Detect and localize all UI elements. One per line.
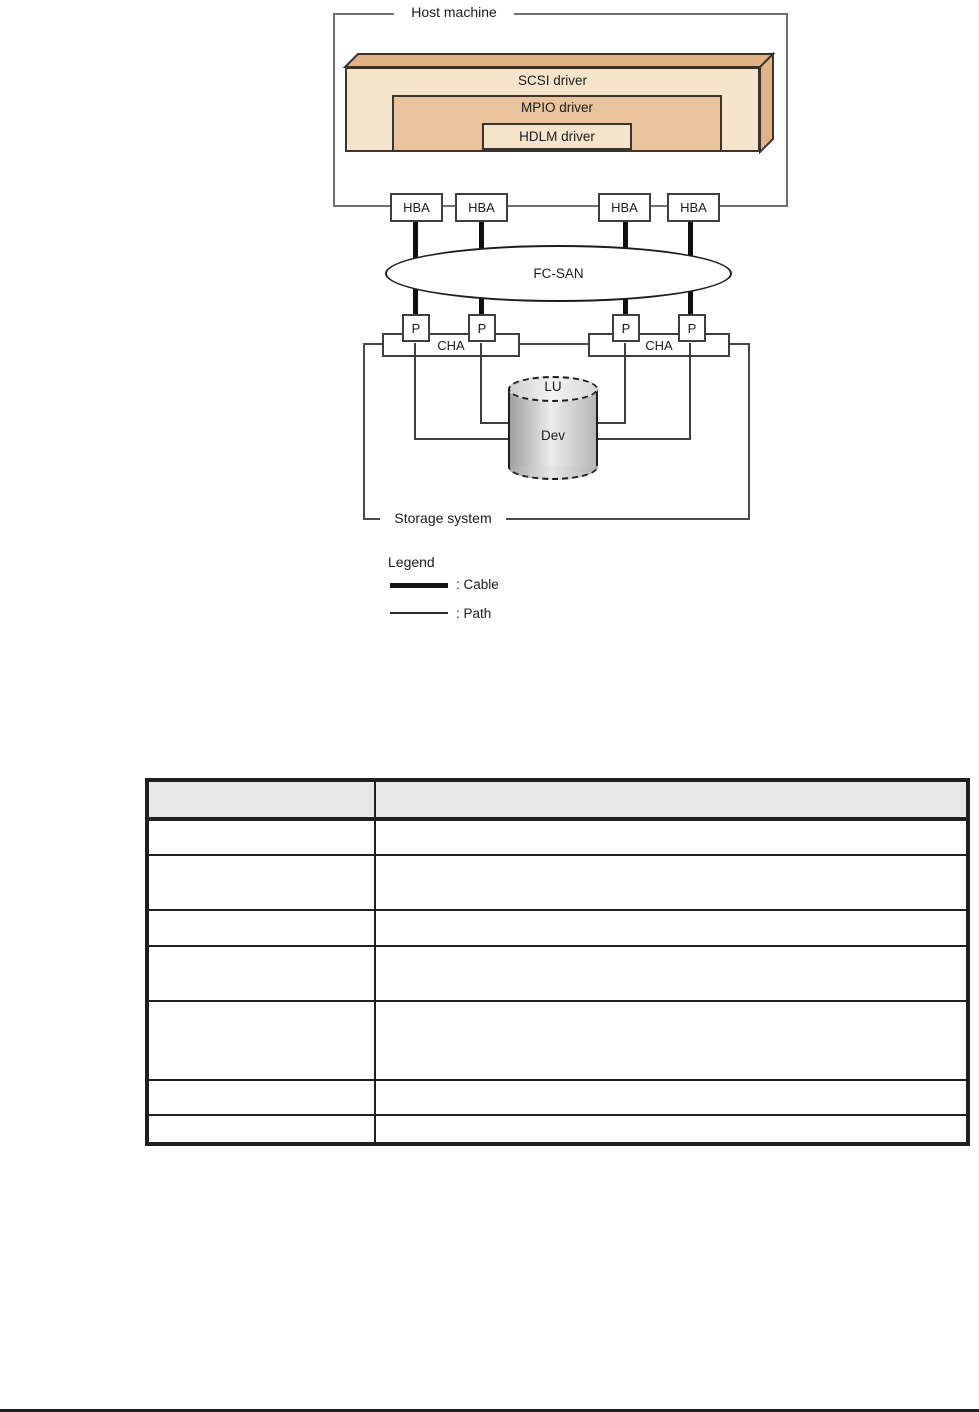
cha-box-2: CHA [588,333,730,357]
table-row [149,854,966,909]
table-row [149,945,966,1000]
table-cell [149,1002,376,1079]
document-page: Host machine SCSI driver MPIO driver HDL… [0,0,979,1412]
table-cell [376,911,966,945]
hba-box-2: HBA [455,193,508,222]
legend-title: Legend [388,554,435,571]
table-cell [376,1081,966,1114]
table-cell [376,947,966,1000]
port-box-3: P [612,314,640,342]
table-cell [149,947,376,1000]
table-cell [376,1116,966,1142]
lu-label: LU [508,379,598,395]
scsi-driver-label: SCSI driver [345,73,760,89]
table-row [149,1079,966,1114]
path-line-vertical-1 [414,343,416,440]
table-row [149,821,966,854]
port-box-4: P [678,314,706,342]
port-box-2: P [468,314,496,342]
path-line-vertical-3 [624,343,626,424]
dev-label: Dev [508,428,598,444]
table-row [149,1114,966,1142]
table-cell [376,856,966,909]
table-header-cell-2 [376,782,966,817]
path-line-horizontal-2 [480,422,508,424]
host-machine-label: Host machine [394,4,514,23]
table-cell [376,1002,966,1079]
table-cell [149,1116,376,1142]
path-line-vertical-2 [480,343,482,424]
table-cell [149,821,376,854]
storage-system-label: Storage system [380,510,506,529]
path-line-horizontal-3 [598,422,626,424]
fc-san-ellipse: FC-SAN [385,245,732,302]
path-line-horizontal-4 [598,438,691,440]
table-cell [376,821,966,854]
legend-cable-label: : Cable [456,577,499,593]
table-row [149,1000,966,1079]
table [145,778,970,1146]
hdlm-driver-box: HDLM driver [482,123,632,150]
hba-box-3: HBA [598,193,651,222]
table-cell [149,856,376,909]
table-row [149,909,966,945]
table-header-row [149,782,966,821]
table-cell [149,911,376,945]
mpio-driver-label: MPIO driver [392,100,722,116]
path-line-horizontal-1 [414,438,508,440]
legend-cable-line-sample [390,583,448,588]
legend-path-line-sample [390,612,448,614]
lu-cylinder-bottom-cap [506,466,600,482]
hba-box-4: HBA [667,193,720,222]
hba-box-1: HBA [390,193,443,222]
legend-path-label: : Path [456,606,491,622]
table-header-cell-1 [149,782,376,817]
path-line-vertical-4 [689,343,691,440]
table-cell [149,1081,376,1114]
port-box-1: P [402,314,430,342]
